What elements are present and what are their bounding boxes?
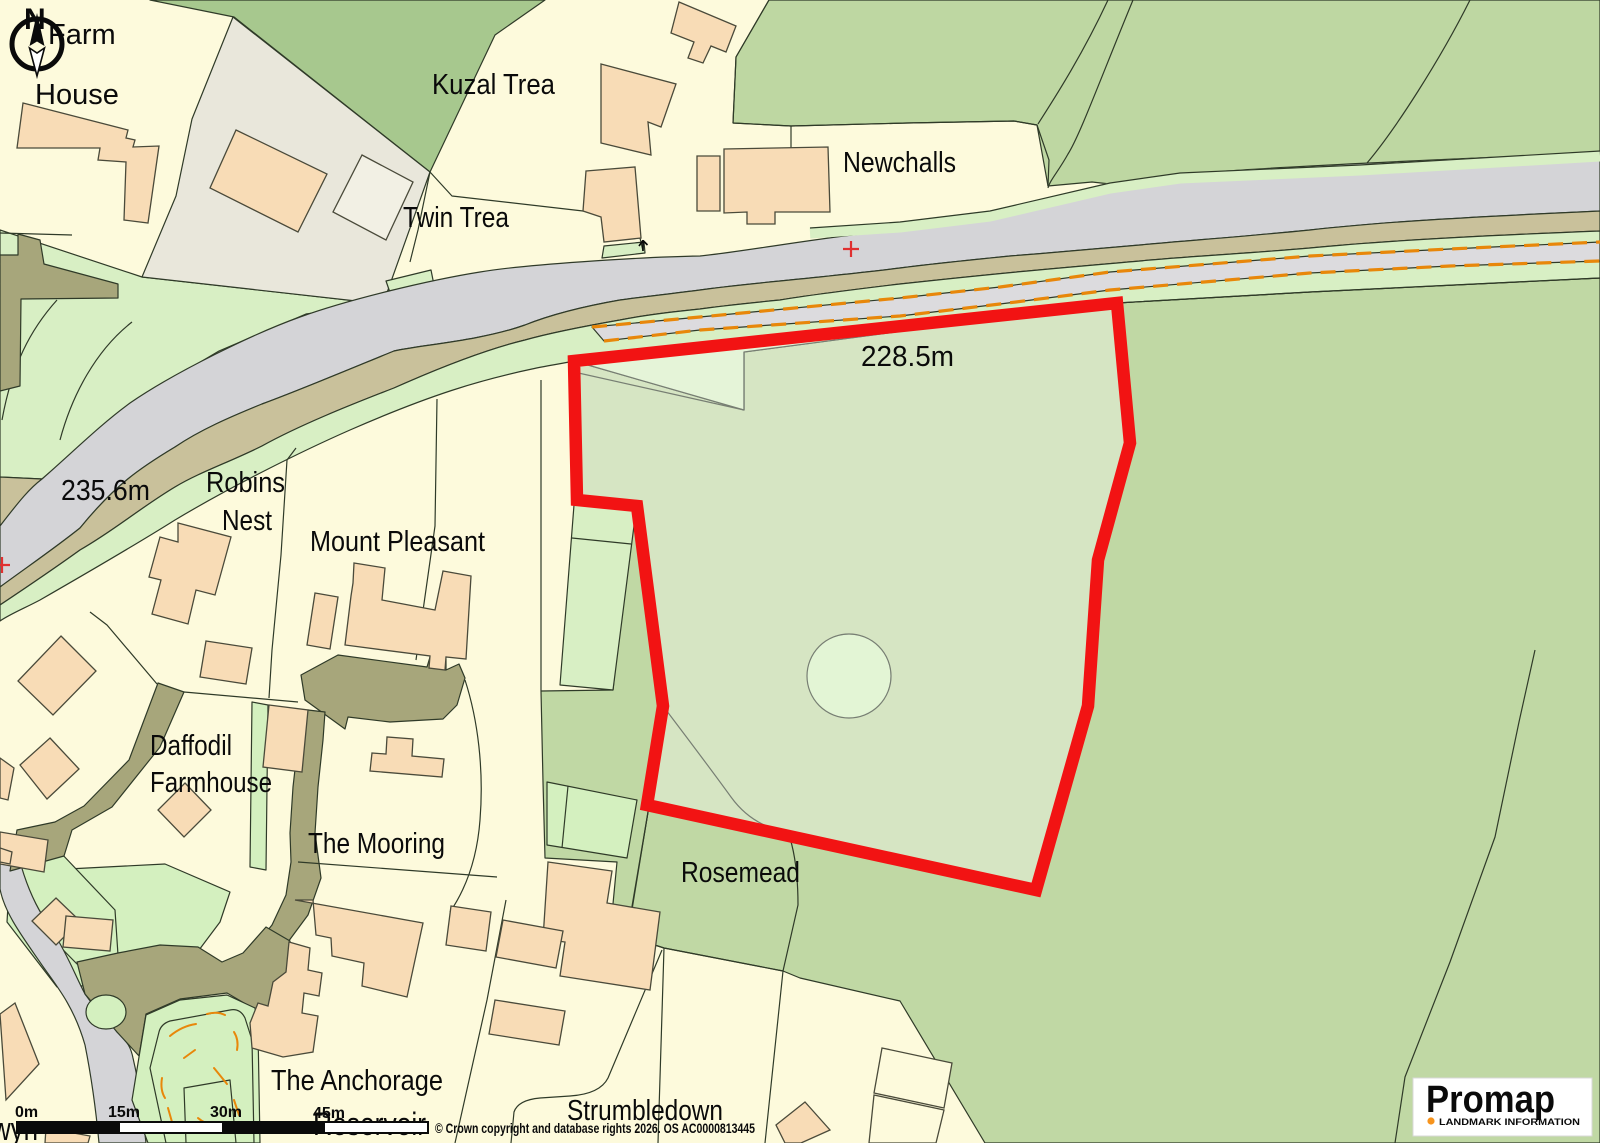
svg-text:228.5m: 228.5m [861, 341, 954, 373]
svg-text:Nest: Nest [222, 505, 272, 537]
svg-text:Promap: Promap [1426, 1079, 1555, 1121]
svg-text:Kuzal Trea: Kuzal Trea [432, 69, 556, 101]
svg-text:N: N [24, 3, 46, 36]
svg-text:15m: 15m [108, 1104, 140, 1121]
svg-text:30m: 30m [210, 1104, 242, 1121]
svg-text:Newchalls: Newchalls [843, 147, 956, 179]
svg-text:The Anchorage: The Anchorage [271, 1065, 443, 1097]
svg-text:The Mooring: The Mooring [308, 828, 445, 860]
svg-text:Farmhouse: Farmhouse [150, 767, 272, 799]
svg-text:Twin Trea: Twin Trea [403, 202, 510, 234]
svg-text:Rosemead: Rosemead [681, 857, 800, 889]
svg-text:House: House [35, 79, 119, 111]
svg-text:Mount Pleasant: Mount Pleasant [310, 526, 485, 558]
svg-text:0m: 0m [15, 1104, 38, 1121]
svg-text:Daffodil: Daffodil [150, 730, 232, 762]
svg-text:LANDMARK INFORMATION: LANDMARK INFORMATION [1439, 1117, 1580, 1128]
svg-text:© Crown copyright and database: © Crown copyright and database rights 20… [435, 1121, 755, 1136]
svg-text:Robins: Robins [206, 467, 285, 499]
svg-text:235.6m: 235.6m [61, 475, 150, 507]
svg-text:45m: 45m [313, 1105, 345, 1122]
